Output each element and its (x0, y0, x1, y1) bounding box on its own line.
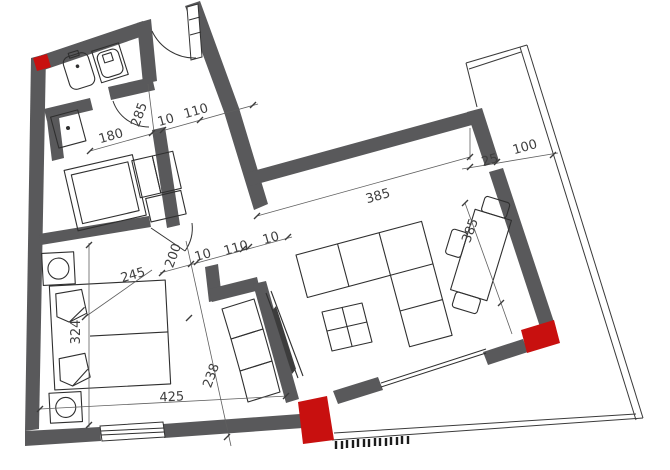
pillow (56, 289, 88, 323)
terrace-edge-bottom-outer (332, 418, 643, 440)
wardrobe-cell (222, 299, 263, 339)
pillow-fold (72, 369, 89, 386)
washbasin-drain (66, 126, 71, 131)
wall-living-top (246, 112, 472, 186)
dim-extension (501, 303, 512, 334)
coffee-table-divider (327, 322, 367, 331)
closet-cell (132, 156, 161, 198)
terrace-edge-left (466, 63, 477, 107)
shower-tray-inner (71, 162, 139, 224)
dim-label-200: 200 (162, 242, 185, 270)
wall-bedroom-living-diagonal (253, 281, 299, 403)
dim-label-238: 238 (200, 362, 223, 390)
red-column-right (521, 320, 560, 353)
red-column-bottom (298, 396, 334, 444)
wardrobe-cell (231, 329, 272, 371)
terrace-edge-right-outer (527, 45, 643, 418)
bidet-drain (75, 64, 80, 69)
bedroom-furniture (42, 247, 173, 423)
dim-label-25: 25 (480, 151, 500, 170)
floor-plan-canvas: 180 285 10 110 25 100 385 385 200 10 110… (0, 0, 670, 470)
living-window-glazing (381, 349, 486, 383)
wall-right-diagonal-lower (489, 168, 556, 333)
wall-bathroom-jog (108, 77, 155, 100)
terrace-railing-hatch (336, 436, 408, 449)
dim-label-100: 100 (511, 137, 539, 158)
sofa-seat-divider (400, 300, 443, 311)
living-window-glazing (381, 353, 486, 387)
dim-label-10-door-right: 10 (261, 229, 281, 248)
wall-bathroom-right (137, 19, 157, 84)
dim-label-385-living: 385 (364, 186, 392, 207)
nightstand (42, 252, 76, 286)
dim-line-terrace (462, 153, 558, 169)
dim-label-110-door: 110 (222, 238, 250, 259)
window-pier-upper (483, 339, 528, 365)
dim-label-285: 285 (128, 101, 151, 129)
sofa-group (296, 221, 452, 369)
dim-label-245: 245 (119, 265, 147, 286)
pillow (59, 353, 91, 387)
dimension-ticks (37, 102, 556, 440)
wall-shower-right (152, 127, 180, 228)
toilet-flush (102, 53, 113, 63)
nightstand-lamp (47, 258, 69, 280)
sectional-sofa (296, 221, 452, 369)
wall-bottom-right (163, 414, 303, 438)
wall-bottom-left (25, 427, 101, 446)
window-pier-lower (333, 377, 383, 404)
dim-label-110-hall: 110 (182, 101, 210, 122)
dim-label-10-door-left: 10 (193, 246, 213, 265)
floor-plan-svg: 180 285 10 110 25 100 385 385 200 10 110… (0, 0, 670, 470)
bedroom-window (100, 422, 165, 441)
terrace-edge-right-inner (520, 47, 636, 420)
terrace-edge-bottom-inner (334, 414, 636, 433)
coffee-table-group (322, 303, 372, 351)
dining-chair (452, 291, 482, 314)
sofa-seat-divider (390, 264, 433, 275)
dim-label-10-hall: 10 (156, 111, 176, 130)
bedroom-door-swing (185, 223, 192, 251)
sofa-seat-divider (338, 244, 349, 287)
dim-label-180: 180 (97, 126, 125, 147)
dim-label-425: 425 (159, 389, 185, 405)
wall-top-bathroom (33, 21, 149, 71)
wardrobe-cell (240, 361, 280, 402)
dim-label-324: 324 (69, 320, 84, 345)
sofa-seat-divider (379, 233, 390, 276)
bed-divider (90, 332, 168, 336)
